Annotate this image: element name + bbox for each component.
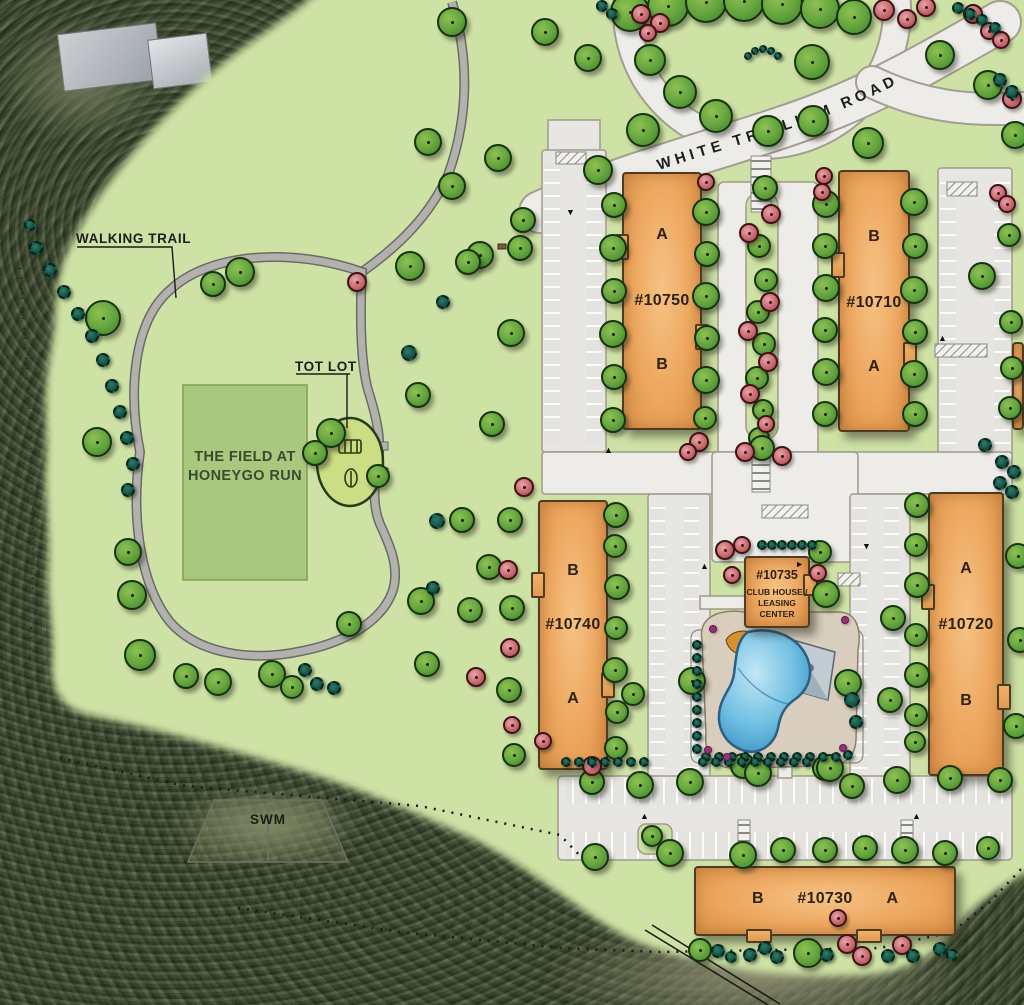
- pool-area: [691, 611, 863, 768]
- building-10750-unit-bottom: B: [624, 356, 700, 374]
- building-10710-number: #10710: [840, 294, 908, 312]
- swm-pond: [188, 800, 348, 862]
- building-10750: A #10750 B: [622, 172, 702, 430]
- median-island: [746, 192, 778, 440]
- site-plan: WHITE TRILLIUM ROAD A #10750 B B #10710 …: [0, 0, 1024, 1005]
- clubhouse-10735: #10735 CLUB HOUSE / LEASING CENTER: [744, 556, 810, 628]
- building-10740: B #10740 A: [538, 500, 608, 770]
- field-label-line1: THE FIELD AT: [182, 448, 308, 467]
- building-10740-unit-top: B: [540, 562, 606, 580]
- field-label-line2: HONEYGO RUN: [182, 467, 308, 486]
- tot-lot-label: TOT LOT: [295, 359, 357, 374]
- clubhouse-name-2: LEASING: [746, 598, 808, 608]
- building-10720-number: #10720: [930, 616, 1002, 634]
- building-10750-number: #10750: [624, 292, 700, 310]
- tot-lot: [317, 418, 383, 506]
- building-10720: A #10720 B: [928, 492, 1004, 776]
- building-10730-number: #10730: [696, 890, 954, 908]
- building-10750-unit-top: A: [624, 226, 700, 244]
- building-10710: B #10710 A: [838, 170, 910, 432]
- clubhouse-name-1: CLUB HOUSE /: [746, 587, 808, 597]
- plan-vector-layer: WHITE TRILLIUM ROAD: [0, 0, 1024, 1005]
- building-10730: B #10730 A: [694, 866, 956, 936]
- building-partial-east: [1012, 342, 1024, 430]
- bench-icon: [514, 239, 522, 244]
- building-10710-unit-top: B: [840, 228, 908, 246]
- walking-trail-label: WALKING TRAIL: [76, 231, 191, 246]
- building-10730-unit-right: A: [886, 890, 898, 908]
- swm-label: SWM: [250, 812, 286, 827]
- building-10720-unit-bottom: B: [930, 692, 1002, 710]
- building-10740-number: #10740: [540, 616, 606, 634]
- field-label: THE FIELD AT HONEYGO RUN: [182, 448, 308, 486]
- building-10720-unit-top: A: [930, 560, 1002, 578]
- building-10740-unit-bottom: A: [540, 690, 606, 708]
- bench-icon: [498, 244, 506, 249]
- clubhouse-number: #10735: [746, 568, 808, 582]
- building-10710-unit-bottom: A: [840, 358, 908, 376]
- clubhouse-name-3: CENTER: [746, 609, 808, 619]
